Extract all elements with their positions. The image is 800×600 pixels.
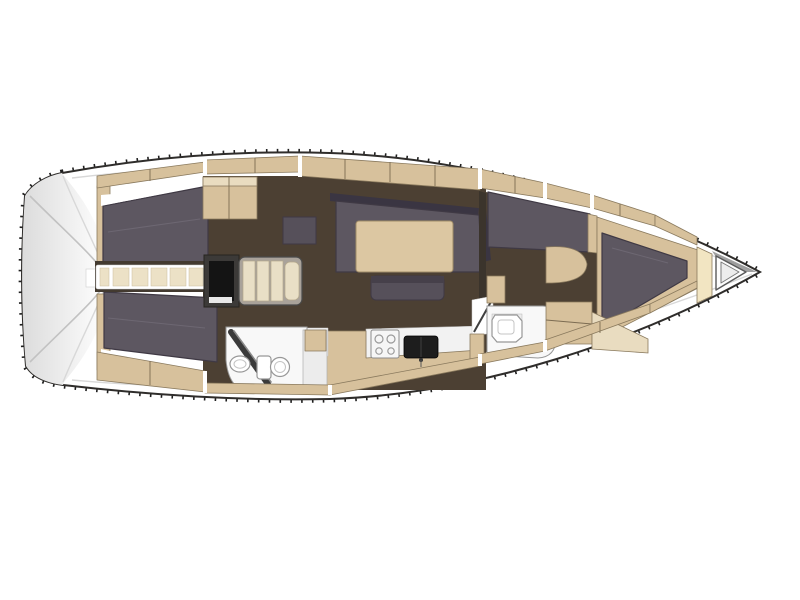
boat-layout-figure [0,0,800,600]
shower-seat [305,330,326,351]
bench-backrest [371,276,444,283]
trim-gap [328,385,332,395]
toilet [271,358,290,377]
washbasin [230,356,250,372]
trim-gap [298,155,302,177]
step-tread [257,261,269,301]
step-landing [285,262,299,300]
bulkhead-wall [479,191,486,305]
trim-gap [543,182,547,199]
engine-step [209,297,232,303]
bow-bulkhead [697,247,712,303]
plank [189,268,203,286]
step-tread [271,261,283,301]
plank [170,268,186,286]
engine-hatch [209,261,234,301]
plank [113,268,129,286]
berth-divider [588,214,597,253]
trim-segment [205,383,330,395]
stove [371,330,399,358]
trim-gap [478,168,482,189]
trim-gap [203,158,207,175]
trim-gap [203,371,207,393]
side-seat [487,276,505,303]
trim-gap [543,340,547,352]
yacht-floorplan-svg [0,0,800,600]
side-seat [283,217,316,244]
plank [151,268,167,286]
cabinet-top [203,177,257,186]
toilet [492,315,522,342]
plank [132,268,148,286]
trim-gap [590,194,594,209]
step-tread [243,261,255,301]
plank [100,268,109,286]
saloon-table [356,221,453,272]
aft-cabin-port [97,186,208,262]
toilet-tank [257,356,271,379]
trim-gap [478,354,482,366]
aft-head [226,327,328,389]
